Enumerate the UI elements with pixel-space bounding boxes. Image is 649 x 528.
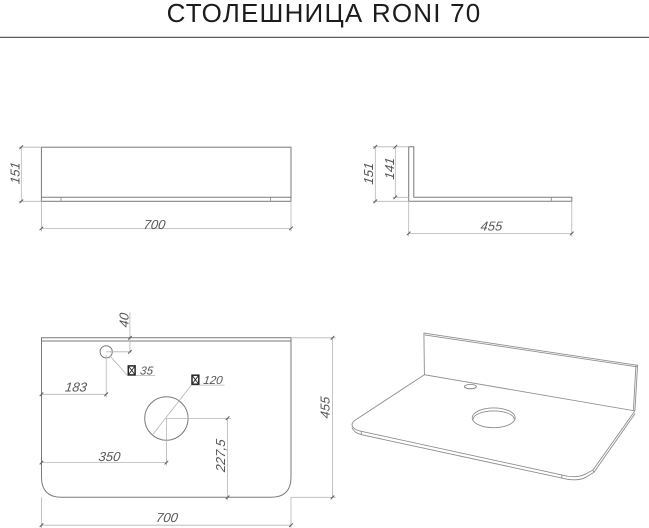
svg-text:183: 183: [64, 379, 88, 394]
svg-text:СТОЛЕШНИЦА RONI 70: СТОЛЕШНИЦА RONI 70: [167, 0, 482, 28]
svg-text:455: 455: [480, 219, 504, 234]
svg-text:40: 40: [117, 311, 132, 328]
svg-text:350: 350: [98, 449, 122, 464]
svg-text:700: 700: [155, 510, 179, 525]
svg-text:151: 151: [361, 162, 376, 186]
svg-text:151: 151: [7, 161, 22, 185]
svg-text:700: 700: [143, 217, 167, 232]
svg-text:120: 120: [203, 375, 224, 387]
svg-text:35: 35: [139, 366, 154, 378]
svg-text:227,5: 227,5: [213, 438, 228, 474]
svg-text:141: 141: [382, 157, 397, 181]
svg-text:455: 455: [318, 395, 333, 419]
